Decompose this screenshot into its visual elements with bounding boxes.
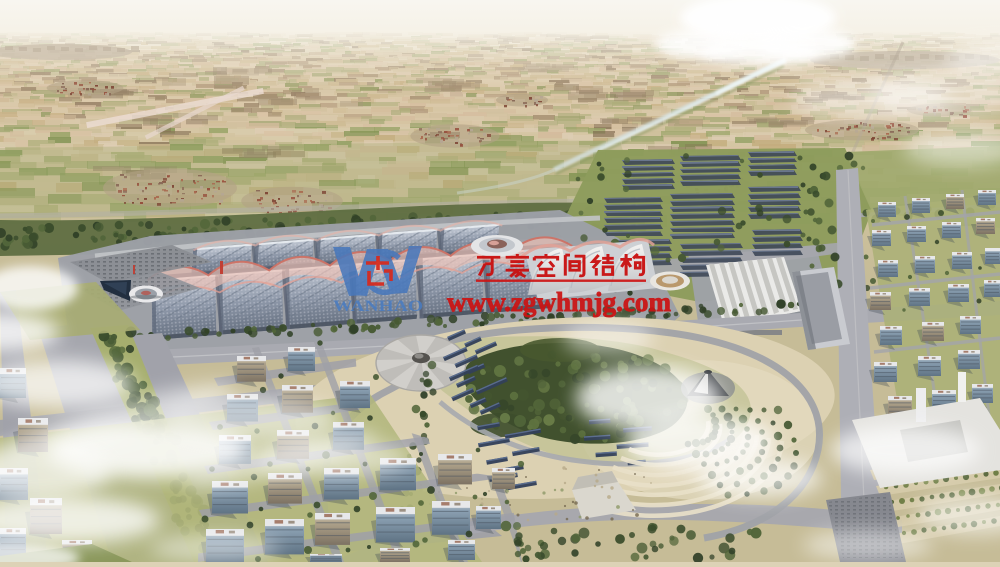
svg-text:www.zgwhmjg.com: www.zgwhmjg.com	[447, 287, 672, 317]
svg-text:WANHAO: WANHAO	[333, 298, 423, 315]
